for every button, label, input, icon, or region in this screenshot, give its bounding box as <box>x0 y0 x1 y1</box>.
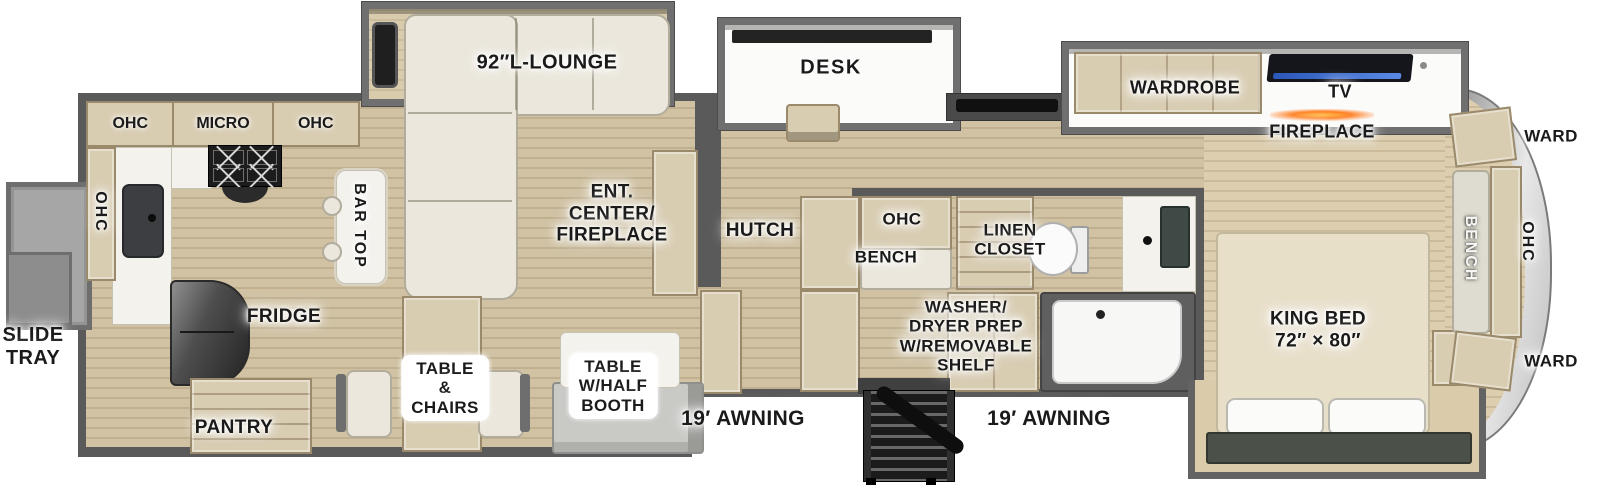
label-ohc-front: OHC <box>1518 221 1536 263</box>
burner-icon <box>247 150 278 165</box>
dinette-chair-back <box>336 374 346 432</box>
label-pantry: PANTRY <box>195 417 273 439</box>
shower-drain <box>1096 310 1105 319</box>
label-fridge: FRIDGE <box>247 306 321 328</box>
label-lounge: 92″L-LOUNGE <box>477 52 618 75</box>
ward-cabinet-bottom <box>1449 330 1517 391</box>
label-ohc-kitchen-wall: OHC <box>91 191 109 233</box>
bed-pillow <box>1226 398 1324 436</box>
label-ent-center: ENT. CENTER/ FIREPLACE <box>556 182 667 247</box>
sofa-seam <box>408 112 512 114</box>
bath-sink-drain <box>1143 236 1152 245</box>
label-awning-left: 19′ AWNING <box>681 407 805 431</box>
tv-camera-dot <box>1420 62 1427 69</box>
label-king-bed: KING BED 72″ × 80″ <box>1270 308 1366 351</box>
label-tv: TV <box>1328 82 1352 103</box>
kitchen-ohc-row: OHC MICRO OHC <box>86 101 360 147</box>
microwave-cabinet: MICRO <box>174 103 273 145</box>
desk-chair <box>786 104 840 142</box>
lounge-window <box>372 22 398 88</box>
dinette-chair <box>346 370 392 438</box>
burner-icon <box>247 168 278 183</box>
ohc-cabinet: OHC <box>88 103 174 145</box>
label-fireplace: FIREPLACE <box>1269 122 1375 143</box>
label-bench-bath: BENCH <box>855 247 917 266</box>
label-washer-dryer: WASHER/ DRYER PREP W/REMOVABLE SHELF <box>900 297 1033 375</box>
tv-screen <box>1273 73 1402 79</box>
step-foot <box>926 478 936 485</box>
tv <box>1267 54 1414 82</box>
bed-headboard <box>1206 432 1472 464</box>
ward-cabinet-top <box>1449 106 1517 167</box>
fridge-door-seam <box>180 331 234 333</box>
shower-pan <box>1052 300 1182 384</box>
label-table-chairs: TABLE & CHAIRS <box>401 355 489 421</box>
sofa-seam <box>408 200 512 202</box>
label-linen-closet: LINEN CLOSET <box>974 221 1045 260</box>
label-ohc-bath: OHC <box>883 209 922 228</box>
kitchen-sink <box>122 184 164 258</box>
label-wardrobe: WARDROBE <box>1130 78 1240 99</box>
label-awning-right: 19′ AWNING <box>987 407 1111 431</box>
rv-floorplan: OHC MICRO OHC <box>0 0 1600 485</box>
sink-faucet <box>148 214 156 222</box>
label-desk: DESK <box>800 57 862 80</box>
label-table-booth: TABLE W/HALF BOOTH <box>569 353 658 419</box>
bar-stool <box>322 242 342 262</box>
desk-surface <box>732 30 932 43</box>
wall-bath-bedroom <box>1196 188 1204 393</box>
kitchen-peninsula-end <box>700 290 742 394</box>
label-bench-front: BENCH <box>1461 216 1479 283</box>
label-hutch: HUTCH <box>726 220 795 242</box>
ohc-cabinet: OHC <box>274 103 358 145</box>
label-ward-top: WARD <box>1524 126 1578 145</box>
bed-pillow <box>1328 398 1426 436</box>
hutch-lower-cabinet <box>800 290 860 392</box>
slide-tray-lower <box>6 252 72 326</box>
hutch-cabinet <box>800 196 860 290</box>
top-counter-inset <box>956 99 1058 112</box>
bath-faucet-panel <box>1160 206 1190 268</box>
label-ward-bottom: WARD <box>1524 351 1578 370</box>
wall-bath-top <box>852 188 1204 196</box>
bar-stool <box>322 196 342 216</box>
dinette-chair-back <box>520 374 530 432</box>
fireplace-glow <box>1270 109 1374 121</box>
step-foot <box>866 478 876 485</box>
label-slide-tray: SLIDE TRAY <box>3 324 64 370</box>
stove <box>208 145 282 187</box>
burner-icon <box>213 168 244 183</box>
label-bar-top: BAR TOP <box>350 183 368 269</box>
fridge <box>170 280 250 386</box>
pantry-cabinet <box>190 378 312 454</box>
